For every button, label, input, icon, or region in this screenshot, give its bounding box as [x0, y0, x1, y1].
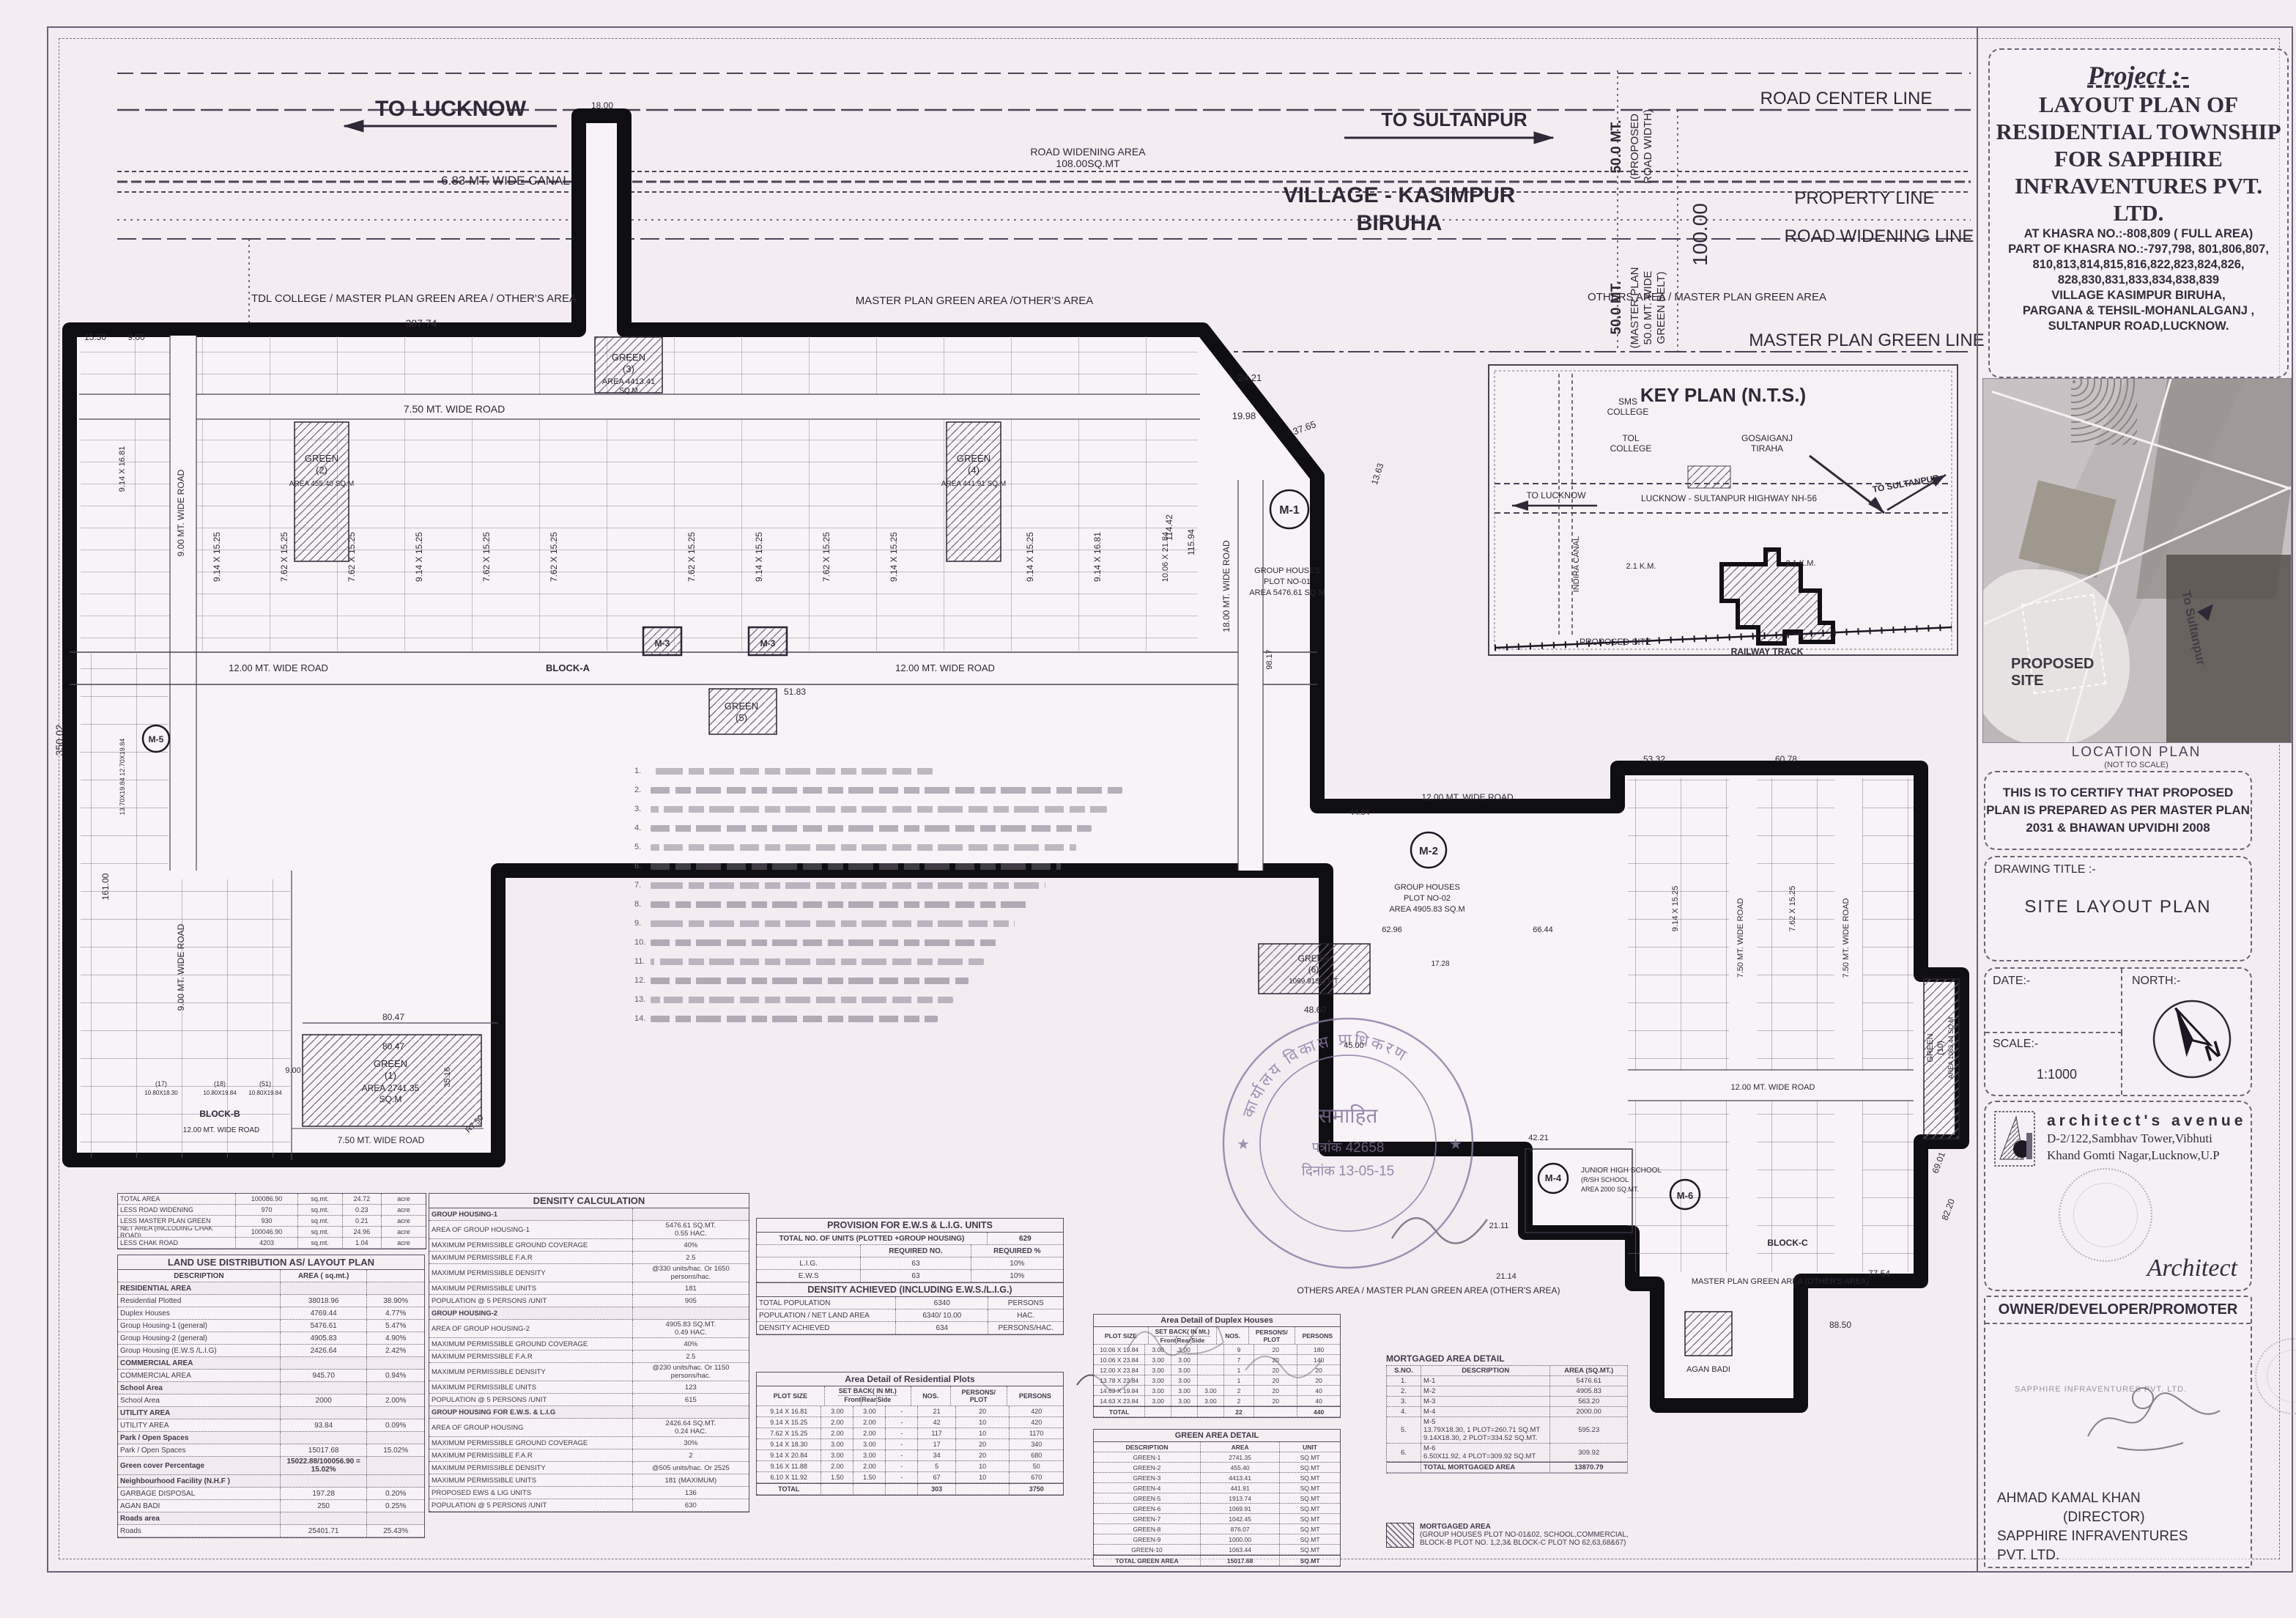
- plan-label: 12.00 MT. WIDE ROAD: [1421, 792, 1514, 802]
- plan-label: 9.14 X 15.25: [414, 532, 424, 582]
- table-cell: 13.78 X 23.84: [1094, 1375, 1145, 1385]
- table-cell: MAXIMUM PERMISSIBLE GROUND COVERAGE: [429, 1437, 633, 1449]
- plan-label: AREA 2000 SQ.MT.: [1581, 1186, 1639, 1193]
- table-cell: -: [886, 1439, 918, 1449]
- table-cell: 21: [918, 1406, 955, 1416]
- table-cell: @230 units/hac. Or 1150 persons/hac.: [633, 1363, 749, 1381]
- project-detail: PART OF KHASRA NO.:-797,798, 801,806,807…: [1990, 242, 2287, 257]
- table-cell: [367, 1432, 424, 1444]
- plan-label: RAILWAY TRACK: [1731, 646, 1804, 657]
- table-row: 14.63 X 23.843.003.003.0022040: [1094, 1396, 1340, 1406]
- table-cell: SQ.MT: [1280, 1556, 1340, 1565]
- table-cell: MAXIMUM PERMISSIBLE UNITS: [429, 1474, 633, 1486]
- table-cell: 3.00: [1145, 1355, 1171, 1364]
- table-row: AGAN BADI2500.25%: [118, 1500, 424, 1512]
- table-cell: 1170: [1010, 1428, 1063, 1438]
- table-row: MAXIMUM PERMISSIBLE F.A.R2.5: [429, 1351, 749, 1363]
- table-cell: 117: [918, 1428, 955, 1438]
- table-cell: 9.14 X 20.84: [757, 1450, 821, 1460]
- plan-label: 66.44: [1533, 926, 1553, 934]
- table-cell: GREEN-10: [1094, 1545, 1201, 1554]
- table-row: MAXIMUM PERMISSIBLE UNITS181 (MAXIMUM): [429, 1474, 749, 1487]
- plan-label: MASTER PLAN GREEN AREA (OTHER'S AREA): [1692, 1277, 1869, 1286]
- plan-label: 10.80X19.84: [248, 1090, 282, 1096]
- table-row: School Area20002.00%: [118, 1394, 424, 1407]
- table-row: UTILITY AREA: [118, 1407, 424, 1419]
- table-cell: 15.02%: [367, 1444, 424, 1456]
- project-line: FOR SAPPHIRE: [1990, 145, 2287, 172]
- table-cell: GROUP HOUSING-1: [429, 1208, 633, 1220]
- table-cell: 6.10 X 11.92: [757, 1472, 821, 1482]
- plan-label: PROPOSED SITE: [1580, 637, 1651, 647]
- table-row: Group Housing-2 (general)4905.834.90%: [118, 1332, 424, 1345]
- table-cell: [1254, 1407, 1297, 1416]
- table-row: TOTAL MORTGAGED AREA13870.79: [1387, 1462, 1627, 1473]
- plan-label: GREEN: [957, 453, 990, 464]
- table-cell: [1171, 1407, 1198, 1416]
- table-cell: acre: [382, 1194, 426, 1204]
- plan-label: (1): [385, 1070, 396, 1081]
- table-cell: 38.90%: [367, 1295, 424, 1307]
- table-cell: MAXIMUM PERMISSIBLE UNITS: [429, 1381, 633, 1393]
- table-cell: 34: [918, 1450, 955, 1460]
- table-row: MAXIMUM PERMISSIBLE F.A.R2: [429, 1449, 749, 1462]
- hindi-notes-block: 1.2.3.4.5.6.7.8.9.10.11.12.13.14.: [634, 766, 1147, 1033]
- table-cell: 3.00: [1198, 1386, 1224, 1395]
- plan-label: AREA 4413.41: [602, 377, 655, 386]
- table-cell: POPULATION @ 5 PERSONS /UNIT: [429, 1394, 633, 1405]
- table-cell: [956, 1484, 1010, 1494]
- table-cell: GREEN-3: [1094, 1473, 1201, 1482]
- plan-label: 62.96: [1382, 926, 1402, 934]
- table-cell: [367, 1475, 424, 1487]
- key-plan: [1489, 365, 1958, 655]
- table-cell: 50: [1010, 1461, 1063, 1471]
- table-cell: SQ.MT: [1280, 1483, 1340, 1493]
- plan-label: PLOT NO-01: [1264, 577, 1311, 586]
- table-cell: GREEN-2: [1094, 1463, 1201, 1472]
- table-row: 5.M-5 13.79X18.30, 1 PLOT=260.71 SQ.MT 9…: [1387, 1417, 1627, 1444]
- table-cell: 10%: [971, 1257, 1063, 1269]
- land-use-table: LAND USE DISTRIBUTION AS/ LAYOUT PLAN DE…: [117, 1255, 425, 1538]
- table-row: LESS CHAK ROAD4203sq.mt.1.04acre: [118, 1238, 426, 1249]
- plan-label: OTHERS AREA / MASTER PLAN GREEN AREA (OT…: [1297, 1285, 1560, 1296]
- project-detail: AT KHASRA NO.:-808,809 ( FULL AREA): [1990, 226, 2287, 242]
- table-cell: 9.16 X 11.88: [757, 1461, 821, 1471]
- table-cell: 0.23: [343, 1205, 382, 1215]
- table-cell: M-1: [1421, 1376, 1550, 1386]
- residential-plots-title: Area Detail of Residential Plots: [757, 1373, 1063, 1386]
- table-cell: MAXIMUM PERMISSIBLE UNITS: [429, 1282, 633, 1294]
- table-cell: MAXIMUM PERMISSIBLE DENSITY: [429, 1264, 633, 1282]
- table-cell: 7.62 X 15.25: [757, 1428, 821, 1438]
- table-cell: TOTAL AREA: [118, 1194, 236, 1204]
- table-cell: 38018.96: [281, 1295, 367, 1307]
- table-row: POPULATION @ 5 PERSONS /UNIT630: [429, 1499, 749, 1512]
- table-cell: [1145, 1407, 1171, 1416]
- table-cell: 1000.00: [1201, 1534, 1280, 1544]
- table-cell: LESS CHAK ROAD: [118, 1238, 236, 1248]
- table-cell: LESS MASTER PLAN GREEN: [118, 1216, 236, 1226]
- table-cell: 3.: [1387, 1397, 1421, 1406]
- note-line: 5.: [634, 843, 1147, 852]
- table-cell: 2.00: [821, 1461, 853, 1471]
- table-cell: MAXIMUM PERMISSIBLE GROUND COVERAGE: [429, 1338, 633, 1350]
- certification-box: THIS IS TO CERTIFY THAT PROPOSEDPLAN IS …: [1984, 771, 2252, 850]
- table-cell: TOTAL GREEN AREA: [1094, 1556, 1201, 1565]
- project-detail: VILLAGE KASIMPUR BIRUHA,: [1990, 288, 2287, 303]
- table-row: POPULATION / NET LAND AREA6340/ 10.00HAC…: [757, 1309, 1063, 1322]
- plan-label: 50.0 MT.: [1609, 281, 1624, 335]
- table-cell: 440: [1297, 1407, 1340, 1416]
- table-cell: 6.: [1387, 1444, 1421, 1461]
- table-row: E.W.S6310%: [757, 1270, 1063, 1282]
- table-cell: 595.23: [1550, 1417, 1627, 1443]
- scale-value: 1:1000: [2037, 1067, 2077, 1082]
- table-cell: 2426.64: [281, 1345, 367, 1356]
- table-cell: 876.07: [1201, 1524, 1280, 1534]
- table-row: POPULATION @ 5 PERSONS /UNIT615: [429, 1394, 749, 1406]
- table-cell: E.W.S: [757, 1270, 861, 1282]
- table-cell: 5476.61: [1550, 1376, 1627, 1386]
- table-cell: [367, 1357, 424, 1369]
- plan-label: AREA 1063.44 SQ.M: [1947, 1017, 1955, 1079]
- table-cell: Duplex Houses: [118, 1307, 281, 1319]
- table-cell: 4.90%: [367, 1332, 424, 1344]
- table-cell: 5.47%: [367, 1320, 424, 1331]
- table-row: Green cover Percentage15022.88/100056.90…: [118, 1457, 424, 1475]
- plan-label: 7.62 X 15.25: [347, 532, 357, 582]
- drawing-title-label: DRAWING TITLE :-: [1994, 863, 2251, 876]
- table-cell: acre: [382, 1238, 426, 1248]
- table-cell: School Area: [118, 1382, 281, 1394]
- plan-label: 9.14 X 15.25: [889, 532, 899, 582]
- table-cell: 303: [918, 1484, 955, 1494]
- table-cell: TOTAL: [1094, 1407, 1145, 1416]
- plan-label: GREEN: [725, 701, 758, 712]
- table-cell: 2741.35: [1201, 1452, 1280, 1462]
- table-cell: SQ.MT: [1280, 1493, 1340, 1503]
- table-cell: 5476.61: [281, 1320, 367, 1331]
- table-cell: -: [886, 1406, 918, 1416]
- table-cell: 1: [1224, 1375, 1255, 1385]
- table-cell: 14.63 X 23.84: [1094, 1396, 1145, 1405]
- note-line: 13.: [634, 995, 1147, 1004]
- table-cell: 10.06 X 23.84: [1094, 1355, 1145, 1364]
- table-row: UTILITY AREA93.840.09%: [118, 1419, 424, 1432]
- table-cell: TOTAL POPULATION: [757, 1297, 896, 1309]
- table-row: GROUP HOUSING-2: [429, 1307, 749, 1320]
- table-cell: 14.63 X 19.84: [1094, 1386, 1145, 1395]
- plan-label: 19.98: [1232, 410, 1256, 421]
- table-cell: 15017.68: [1201, 1556, 1280, 1565]
- table-cell: sq.mt.: [298, 1216, 343, 1226]
- table-row: MAXIMUM PERMISSIBLE DENSITY@230 units/ha…: [429, 1363, 749, 1381]
- plan-label: TOL: [1622, 433, 1639, 443]
- table-cell: Residential Plotted: [118, 1295, 281, 1307]
- table-row: AREA OF GROUP HOUSING-15476.61 SQ.MT. 0.…: [429, 1221, 749, 1239]
- table-row: GREEN-8876.07SQ.MT: [1094, 1524, 1340, 1534]
- table-cell: AREA OF GROUP HOUSING: [429, 1419, 633, 1436]
- plan-label: (R/SH SCHOOL: [1581, 1176, 1629, 1183]
- table-row: GREEN-101063.44SQ.MT: [1094, 1545, 1340, 1555]
- table-cell: 100086.90: [236, 1194, 297, 1204]
- table-cell: 0.25%: [367, 1500, 424, 1512]
- table-row: 9.14 X 18.303.003.00-1720340: [757, 1439, 1063, 1450]
- plan-label: TO SULTANPUR: [1381, 108, 1527, 130]
- plan-label: 17.28: [1431, 960, 1449, 968]
- table-cell: 9.14 X 15.25: [757, 1417, 821, 1427]
- plan-label: 88.50: [1829, 1320, 1851, 1330]
- plan-label: 13.63: [1369, 462, 1386, 486]
- table-cell: MAXIMUM PERMISSIBLE F.A.R: [429, 1252, 633, 1263]
- table-cell: 3.00: [1171, 1355, 1198, 1364]
- table-row: Duplex Houses4769.444.77%: [118, 1307, 424, 1320]
- table-cell: sq.mt.: [298, 1238, 343, 1248]
- plan-label: TDL COLLEGE / MASTER PLAN GREEN AREA / O…: [251, 292, 577, 305]
- table-cell: 3.00: [1171, 1386, 1198, 1395]
- firm-logo-icon: [1994, 1111, 2035, 1167]
- project-label: Project :-: [1990, 60, 2287, 91]
- plan-label: 13.70X19.84 12.70X19.84: [119, 739, 126, 816]
- plan-label: M-1: [1279, 504, 1300, 517]
- table-cell: 3.00: [1198, 1396, 1224, 1405]
- project-detail: PARGANA & TEHSIL-MOHANLALGANJ ,: [1990, 303, 2287, 319]
- plan-label: GOSAIGANJ: [1741, 433, 1793, 443]
- plan-label: 387.74: [406, 317, 437, 329]
- table-row: Park / Open Spaces: [118, 1432, 424, 1444]
- plan-label: 9.14 X 16.81: [118, 446, 127, 492]
- plan-label: KEY PLAN (N.T.S.): [1640, 384, 1806, 406]
- plan-label: 80.47: [382, 1041, 404, 1052]
- table-row: PROPOSED EWS & LIG UNITS136: [429, 1487, 749, 1499]
- table-cell: 3.00: [1145, 1365, 1171, 1375]
- table-cell: [633, 1406, 749, 1418]
- table-cell: 140: [1297, 1355, 1340, 1364]
- note-line: 11.: [634, 957, 1147, 966]
- plan-label: 48.60: [1304, 1005, 1326, 1015]
- plan-label: 9.00: [127, 332, 145, 342]
- table-cell: Park / Open Spaces: [118, 1444, 281, 1456]
- plan-label: 350.02: [53, 724, 65, 756]
- table-cell: PERSONS: [988, 1297, 1063, 1309]
- table-row: GROUP HOUSING FOR E.W.S. & L.I.G: [429, 1406, 749, 1419]
- location-plan-image: PROPOSED SITE To Sultanpur: [1982, 378, 2292, 743]
- plan-label: 161.00: [100, 873, 111, 900]
- plan-sheet: कार्यालय विकास प्राधिकरण ★ ★ समाहित पत्र…: [0, 0, 2296, 1618]
- table-cell: 15017.68: [281, 1444, 367, 1456]
- plan-label: 7.62 X 15.25: [549, 532, 559, 582]
- table-cell: 20: [1254, 1365, 1297, 1375]
- table-row: COMMERCIAL AREA: [118, 1357, 424, 1370]
- table-cell: RESIDENTIAL AREA: [118, 1282, 281, 1294]
- plan-label: 45.00: [1344, 1041, 1364, 1050]
- plan-label: 50.0 MT.: [1609, 120, 1624, 174]
- table-cell: 3.00: [1145, 1345, 1171, 1354]
- table-row: MAXIMUM PERMISSIBLE UNITS123: [429, 1381, 749, 1394]
- note-line: 6.: [634, 862, 1147, 871]
- table-row: 14.63 X 19.843.003.003.0022040: [1094, 1386, 1340, 1396]
- table-cell: PERSONS/HAC.: [988, 1322, 1063, 1334]
- table-row: 2.M-24905.83: [1387, 1386, 1627, 1397]
- architect-signature-text: Architect: [2147, 1255, 2237, 1282]
- table-cell: 309.92: [1550, 1444, 1627, 1461]
- table-cell: 24.96: [343, 1227, 382, 1237]
- plan-label: (6): [1308, 964, 1319, 975]
- table-cell: Group Housing (E.W.S /L.I.G): [118, 1345, 281, 1356]
- architect-box: architect's avenue D-2/122,Sambhav Tower…: [1984, 1101, 2252, 1291]
- plan-label: 18.00: [591, 100, 613, 111]
- table-row: 10.06 X 19.843.003.00920180: [1094, 1345, 1340, 1355]
- plan-label: LUCKNOW - SULTANPUR HIGHWAY NH-56: [1641, 493, 1817, 503]
- table-cell: 2000: [281, 1394, 367, 1406]
- table-cell: [886, 1484, 918, 1494]
- table-cell: MAXIMUM PERMISSIBLE DENSITY: [429, 1462, 633, 1474]
- table-row: 6.10 X 11.921.501.50-6710670: [757, 1472, 1063, 1483]
- plan-label: 15.30: [84, 332, 106, 342]
- plan-label: 69.01: [1930, 1150, 1948, 1175]
- plan-label: 10.80X18.30: [144, 1090, 178, 1096]
- table-cell: SQ.MT: [1280, 1545, 1340, 1554]
- table-cell: 0.21: [343, 1216, 382, 1226]
- table-cell: [1198, 1407, 1224, 1416]
- table-cell: 2.: [1387, 1386, 1421, 1396]
- plan-label: 114.42: [1164, 514, 1174, 541]
- table-cell: MAXIMUM PERMISSIBLE F.A.R: [429, 1351, 633, 1362]
- table-cell: 20: [1254, 1345, 1297, 1354]
- owner-company: PVT. LTD.: [1997, 1546, 2188, 1565]
- table-cell: 180: [1297, 1345, 1340, 1354]
- table-cell: POPULATION @ 5 PERSONS /UNIT: [429, 1499, 633, 1511]
- table-row: TOTAL3033750: [757, 1483, 1063, 1495]
- table-cell: 20: [1297, 1365, 1340, 1375]
- table-cell: sq.mt.: [298, 1205, 343, 1215]
- table-cell: M-3: [1421, 1397, 1550, 1406]
- table-cell: GROUP HOUSING-2: [429, 1307, 633, 1319]
- table-cell: -: [886, 1417, 918, 1427]
- plan-label: BLOCK-C: [1767, 1238, 1808, 1248]
- table-cell: 5476.61 SQ.MT. 0.55 HAC.: [633, 1221, 749, 1238]
- table-cell: NET AREA (INCLUDING CHAK ROAD): [118, 1227, 236, 1237]
- date-scale-north-box: DATE:- SCALE:- 1:1000 NORTH:- N: [1984, 967, 2252, 1096]
- table-cell: 630: [633, 1499, 749, 1511]
- table-cell: 4413.41: [1201, 1473, 1280, 1482]
- table-row: School Area: [118, 1382, 424, 1394]
- table-row: GREEN-71042.45SQ.MT: [1094, 1514, 1340, 1524]
- plan-label: GREEN: [374, 1058, 407, 1069]
- table-cell: 2.5: [633, 1351, 749, 1362]
- table-cell: [633, 1208, 749, 1220]
- plan-label: 9.00 MT. WIDE ROAD: [176, 923, 186, 1011]
- plan-label: 7.50 MT. WIDE ROAD: [338, 1135, 425, 1145]
- plan-label: PROPERTY LINE: [1794, 188, 1934, 208]
- legend-title: MORTGAGED AREA: [1420, 1523, 1491, 1531]
- plan-label: 7.50 MT. WIDE ROAD: [404, 403, 505, 415]
- table-cell: 6340: [896, 1297, 988, 1309]
- note-line: 3.: [634, 805, 1147, 813]
- table-row: GREEN-12741.35SQ.MT: [1094, 1452, 1340, 1463]
- plan-label: GREEN: [305, 453, 338, 464]
- plan-label: 51.83: [784, 687, 806, 697]
- table-cell: [1387, 1463, 1421, 1472]
- table-cell: @330 units/hac. Or 1650 persons/hac.: [633, 1264, 749, 1282]
- note-line: 7.: [634, 881, 1147, 890]
- plan-label: MASTER PLAN GREEN LINE: [1749, 330, 1984, 350]
- table-cell: 1042.45: [1201, 1514, 1280, 1523]
- legend-text: (GROUP HOUSES PLOT NO-01&02, SCHOOL,COMM…: [1420, 1531, 1629, 1547]
- plan-label: M-3: [655, 638, 670, 649]
- table-cell: 22: [1224, 1407, 1255, 1416]
- plan-label: M-4: [1545, 1172, 1562, 1183]
- plan-label: M-6: [1677, 1190, 1693, 1201]
- table-cell: 4905.83: [281, 1332, 367, 1344]
- table-cell: [281, 1512, 367, 1524]
- table-row: 6.M-6 6.50X11.92, 4 PLOT=309.92 SQ.MT309…: [1387, 1444, 1627, 1462]
- table-cell: [1198, 1375, 1224, 1385]
- plan-label: M-2: [1419, 845, 1438, 857]
- plan-label: 98.17: [1265, 649, 1274, 670]
- table-cell: Roads area: [118, 1512, 281, 1524]
- plan-label: GROUP HOUSES: [1254, 566, 1320, 575]
- table-cell: [367, 1407, 424, 1419]
- area-summary-table: TOTAL AREA100086.90sq.mt.24.72acreLESS R…: [117, 1193, 426, 1249]
- table-cell: 93.84: [281, 1419, 367, 1431]
- table-cell: 680: [1010, 1450, 1063, 1460]
- plan-label: 53.32: [1643, 754, 1665, 764]
- table-cell: 20: [956, 1450, 1010, 1460]
- table-cell: 3.00: [821, 1450, 853, 1460]
- plan-label: (PROPOSED: [1629, 114, 1641, 180]
- table-cell: 10.06 X 19.84: [1094, 1345, 1145, 1354]
- density-title: DENSITY CALCULATION: [429, 1194, 749, 1208]
- table-row: GROUP HOUSING-1: [429, 1208, 749, 1221]
- plan-label: 108.00SQ.MT: [1056, 158, 1120, 169]
- plan-label: 7.50 MT. WIDE ROAD: [1736, 898, 1745, 978]
- table-cell: [281, 1282, 367, 1294]
- table-cell: SQ.MT: [1280, 1473, 1340, 1482]
- table-cell: 1.04: [343, 1238, 382, 1248]
- table-row: NET AREA (INCLUDING CHAK ROAD)100046.90s…: [118, 1227, 426, 1238]
- plan-label: COLLEGE: [1607, 407, 1649, 417]
- drawing-title-value: SITE LAYOUT PLAN: [1985, 897, 2251, 917]
- mortgage-legend: MORTGAGED AREA (GROUP HOUSES PLOT NO-01&…: [1386, 1523, 1708, 1548]
- table-cell: COMMERCIAL AREA: [118, 1370, 281, 1381]
- table-cell: 2426.64 SQ.MT. 0.24 HAC.: [633, 1419, 749, 1436]
- table-cell: 63: [861, 1270, 971, 1282]
- direction-arrows: [344, 120, 1553, 144]
- stamp-line3: दिनांक 13-05-15: [1302, 1162, 1394, 1179]
- plan-label: 100.00: [1689, 203, 1711, 266]
- table-cell: 340: [1010, 1439, 1063, 1449]
- plan-label: 7.50 MT. WIDE ROAD: [1842, 898, 1851, 978]
- date-label: DATE:-: [1993, 975, 2030, 988]
- table-row: 12.00 X 23.843.003.0012020: [1094, 1365, 1340, 1375]
- table-row: MAXIMUM PERMISSIBLE DENSITY@505 units/ha…: [429, 1462, 749, 1474]
- plan-label: 9.14 X 15.25: [1025, 532, 1035, 582]
- table-row: AREA OF GROUP HOUSING2426.64 SQ.MT. 0.24…: [429, 1419, 749, 1437]
- table-row: 7.62 X 15.252.002.00-117101170: [757, 1428, 1063, 1439]
- table-cell: 2.00: [853, 1461, 886, 1471]
- table-cell: 9: [1224, 1345, 1255, 1354]
- plan-label: JUNIOR HIGH SCHOOL: [1581, 1167, 1662, 1175]
- table-cell: 10: [956, 1428, 1010, 1438]
- table-cell: 945.70: [281, 1370, 367, 1381]
- plan-label: PLOT NO-02: [1404, 894, 1451, 903]
- table-cell: MAXIMUM PERMISSIBLE F.A.R: [429, 1449, 633, 1461]
- owner-signature: [2073, 1378, 2234, 1466]
- plan-label: (18): [214, 1080, 226, 1087]
- table-cell: M-5 13.79X18.30, 1 PLOT=260.71 SQ.MT 9.1…: [1421, 1417, 1550, 1443]
